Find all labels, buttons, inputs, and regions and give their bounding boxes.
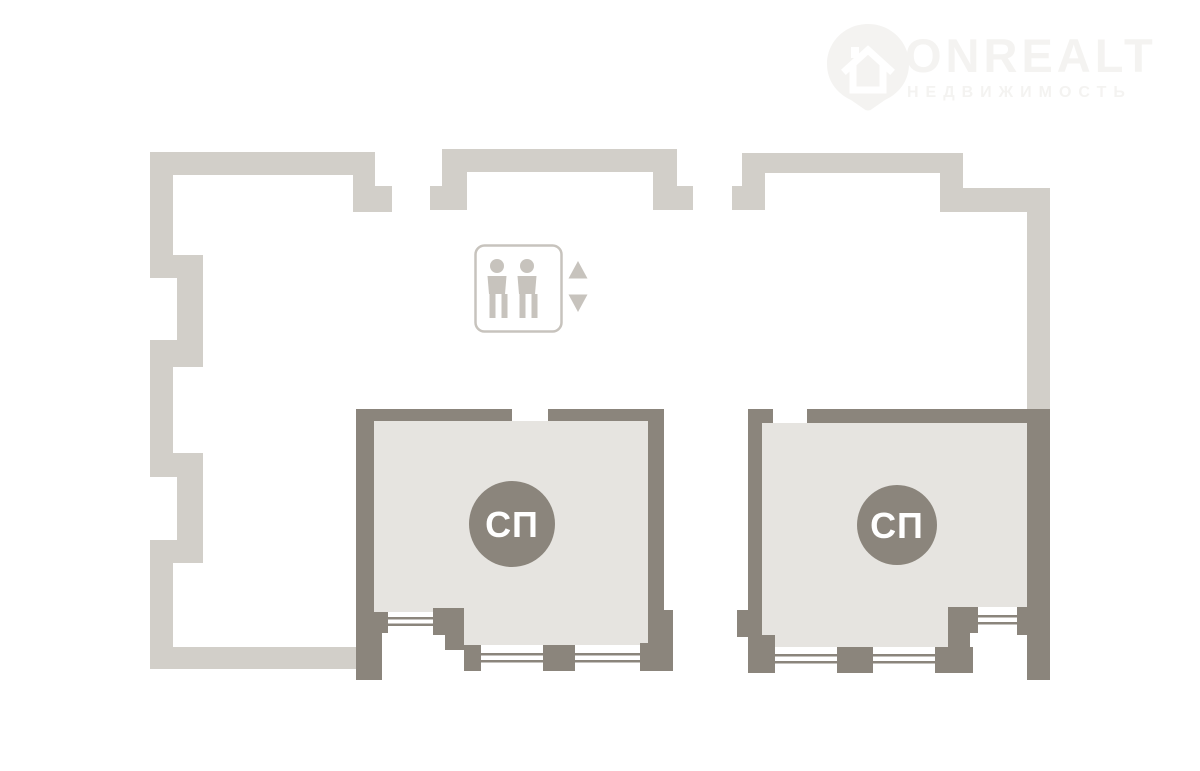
- person-leg: [520, 294, 526, 318]
- person-torso: [488, 276, 507, 294]
- watermark-brand: ONREALT: [905, 29, 1157, 82]
- glazing-line: [388, 624, 433, 627]
- location-pin-icon: [827, 24, 909, 111]
- glazing-line: [575, 660, 640, 663]
- room-left-label: СП: [485, 504, 539, 545]
- glazing-line: [388, 617, 433, 620]
- room-right-label: СП: [870, 505, 924, 546]
- watermark: ONREALT НЕДВИЖИМОСТЬ: [827, 24, 1157, 111]
- elevator-cabin: [476, 246, 562, 332]
- wall-segment: [543, 645, 575, 671]
- person-leg: [532, 294, 538, 318]
- glazing-line: [873, 654, 935, 657]
- wall-segment: [648, 409, 664, 612]
- glazing-line: [775, 654, 837, 657]
- wall-top-right: [732, 153, 1050, 410]
- wall-segment: [648, 610, 673, 671]
- wall-segment: [548, 409, 664, 421]
- glazing-line: [481, 660, 543, 663]
- person-leg: [490, 294, 496, 318]
- wall-segment: [807, 409, 1050, 423]
- floorplan-canvas: ONREALT НЕДВИЖИМОСТЬ: [0, 0, 1200, 771]
- glazing-line: [575, 653, 640, 656]
- house-chimney-icon: [851, 47, 859, 58]
- room-left-floor-lower: [464, 608, 648, 645]
- elevator-icon: [476, 246, 588, 332]
- wall-segment: [433, 608, 464, 635]
- person-torso: [518, 276, 537, 294]
- wall-segment: [356, 612, 388, 633]
- person-head: [520, 259, 534, 273]
- glazing-line: [481, 653, 543, 656]
- wall-segment: [356, 409, 374, 613]
- wall-segment: [748, 409, 762, 613]
- arrow-down-icon: [569, 295, 588, 313]
- glazing-line: [978, 622, 1017, 625]
- wall-top-middle: [430, 149, 693, 210]
- wall-segment: [948, 633, 970, 667]
- watermark-tagline: НЕДВИЖИМОСТЬ: [907, 84, 1132, 101]
- wall-segment: [948, 607, 978, 633]
- wall-top-left-zigzag: [150, 152, 392, 669]
- arrow-up-icon: [569, 261, 588, 279]
- person-leg: [502, 294, 508, 318]
- wall-segment: [356, 633, 382, 680]
- floorplan-svg: ONREALT НЕДВИЖИМОСТЬ: [0, 0, 1200, 771]
- wall-segment: [837, 647, 873, 673]
- wall-segment: [445, 635, 464, 650]
- wall-segment: [1027, 410, 1050, 680]
- glazing-line: [978, 615, 1017, 618]
- wall-segment: [737, 610, 762, 637]
- glazing-line: [873, 661, 935, 664]
- room-right-floor-lower: [762, 607, 948, 647]
- glazing-line: [775, 661, 837, 664]
- wall-segment: [748, 635, 775, 673]
- wall-segment: [464, 645, 481, 671]
- wall-segment: [356, 409, 512, 421]
- person-head: [490, 259, 504, 273]
